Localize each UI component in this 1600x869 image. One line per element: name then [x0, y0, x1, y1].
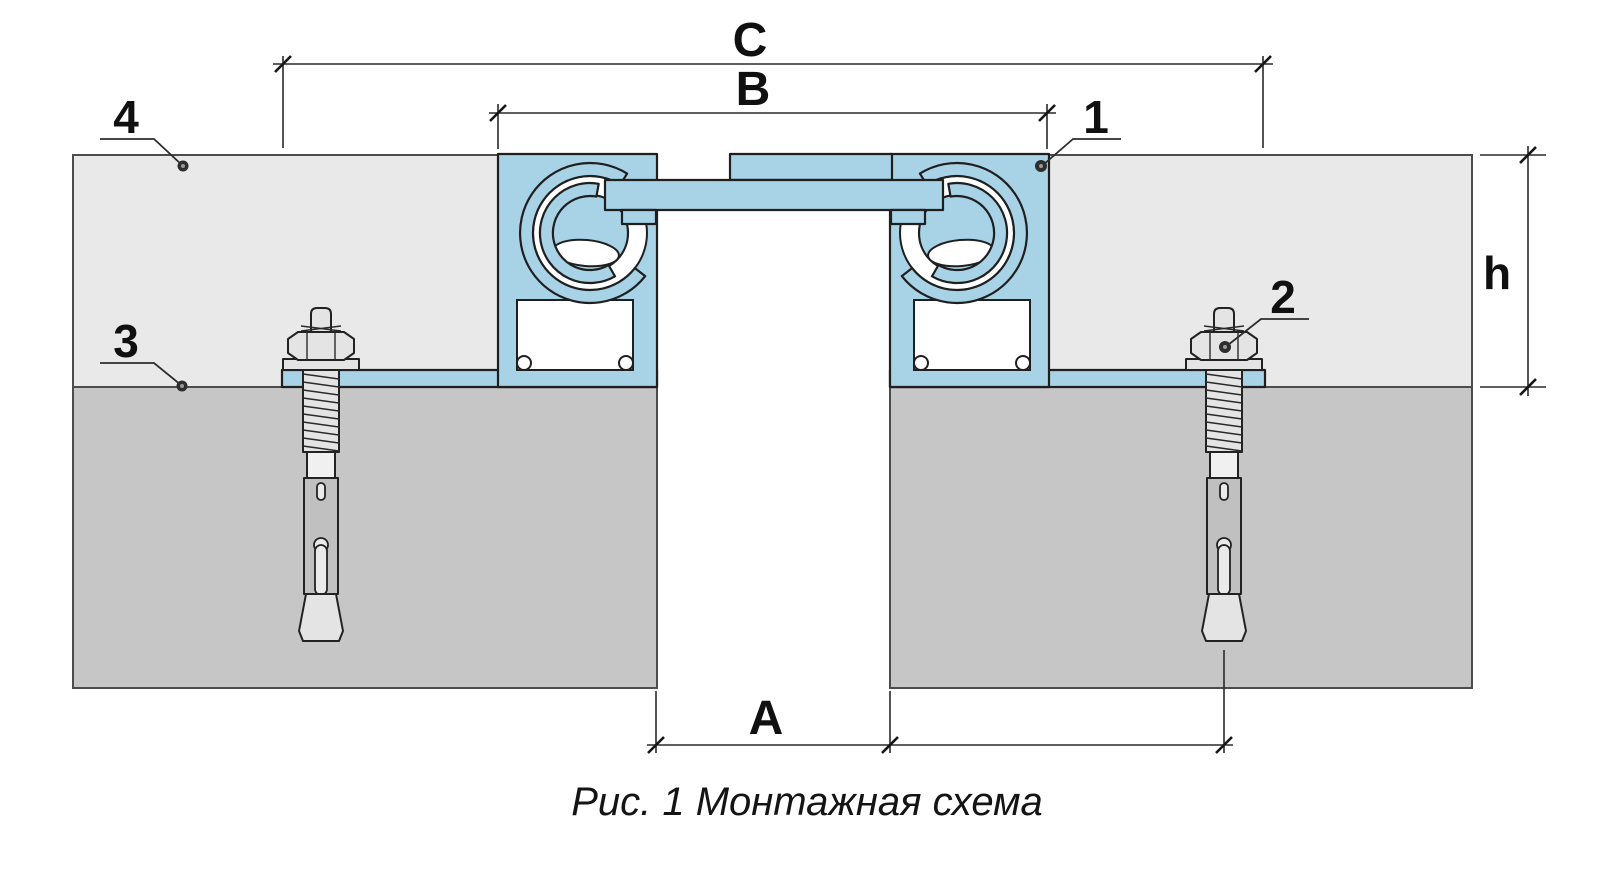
- dimension-a-label: A: [749, 692, 784, 745]
- base-slab-left: [73, 387, 657, 688]
- callout-2-number: 2: [1270, 271, 1296, 323]
- figure-caption: Рис. 1 Монтажная схема: [571, 780, 1043, 824]
- dimension-b: B: [489, 63, 1056, 149]
- callout-4-dot-core: [181, 164, 185, 168]
- callout-1-number: 1: [1083, 91, 1109, 143]
- dimension-c-label: C: [733, 14, 768, 67]
- dimension-c: C: [273, 14, 1273, 148]
- slider-lock-tab-left: [622, 210, 656, 224]
- callout-4-number: 4: [113, 91, 139, 143]
- callout-3-dot-core: [180, 384, 184, 388]
- diagram-canvas: C B A h 4 3 1: [0, 0, 1600, 869]
- callout-1-dot-core: [1039, 164, 1043, 168]
- slider-center-plate: [605, 180, 943, 210]
- dimension-h-label: h: [1483, 247, 1511, 299]
- callout-2-dot-core: [1223, 345, 1227, 349]
- callout-3-number: 3: [113, 315, 139, 367]
- dimension-b-witness-lines: [498, 104, 1047, 149]
- dimension-h: h: [1480, 146, 1546, 396]
- profile-top-cover-plate: [730, 154, 892, 180]
- installation-diagram: C B A h 4 3 1: [0, 0, 1600, 869]
- slider-lock-tab-right: [891, 210, 925, 224]
- dimension-c-witness-lines: [283, 56, 1263, 148]
- dimension-b-label: B: [736, 63, 771, 116]
- slab-layers: [73, 155, 1472, 688]
- base-slab-right: [890, 387, 1472, 688]
- screed-layer-right: [1047, 155, 1472, 387]
